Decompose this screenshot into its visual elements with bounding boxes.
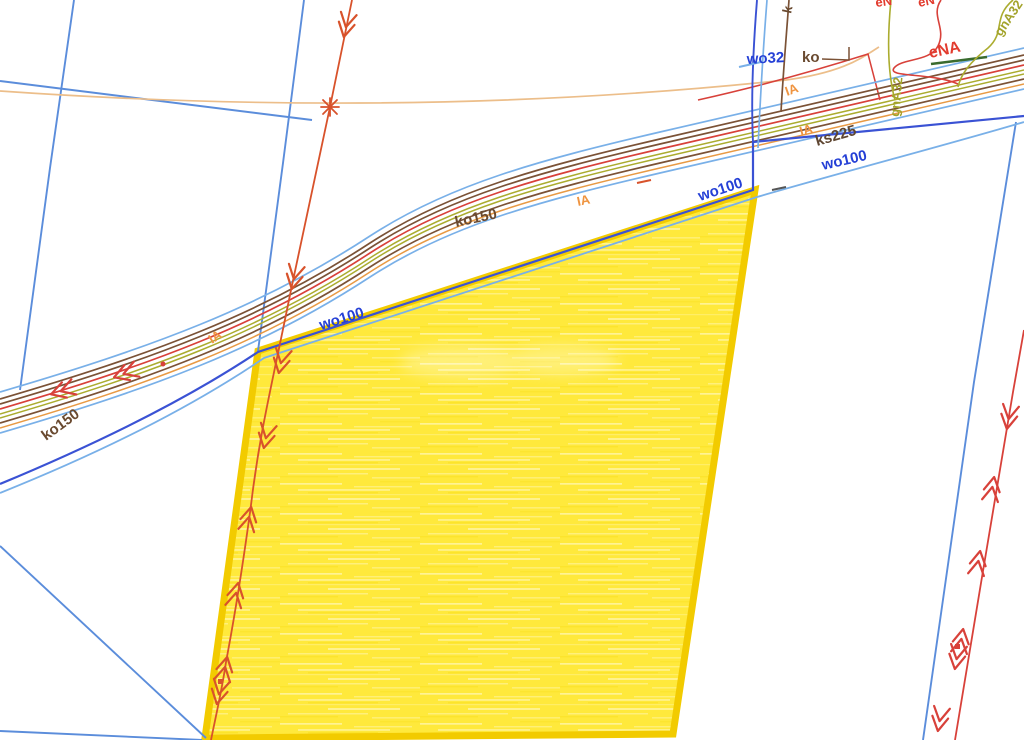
flow-arrow-icon	[999, 404, 1019, 430]
label-ko150-left: ko150	[38, 405, 82, 444]
label-IA-mid: IA	[576, 191, 592, 209]
junction-node-icon	[955, 644, 960, 649]
map-canvas[interactable]: ko150 ko150 IA IA IA IA wo100 wo100 wo10…	[0, 0, 1024, 740]
boundary-line-vertical-left	[20, 0, 74, 390]
tick-mark	[637, 180, 651, 183]
boundary-line-vertical-right	[258, 0, 304, 351]
label-ko: ko	[802, 49, 820, 66]
junction-node-icon	[161, 362, 166, 367]
boundary-line-bottom-diagonal	[0, 546, 206, 738]
flow-arrow-icon	[930, 706, 950, 732]
water-line-wo32-a	[752, 0, 757, 142]
junction-star-icon	[321, 98, 339, 116]
boundary-line-bottom-edge	[0, 731, 202, 740]
label-ko150-mid: ko150	[453, 205, 498, 230]
boundary-line-top-left	[0, 81, 312, 120]
label-wo100-right: wo100	[819, 147, 868, 174]
label-gnA32-corner: gnA32	[991, 0, 1024, 39]
label-eNA: eNA	[927, 39, 962, 62]
label-IA-upper: IA	[783, 80, 801, 99]
highlighted-parcel[interactable]	[205, 190, 755, 738]
drainage-path	[955, 330, 1024, 740]
flow-arrow-icon	[336, 12, 357, 39]
label-gnA32: gnA32	[887, 76, 905, 117]
ko-leader-bracket	[822, 47, 849, 60]
flow-arrow-icon	[284, 264, 305, 291]
drainage-line-right	[930, 330, 1024, 740]
label-eN-right: eN	[917, 0, 936, 10]
label-k: k	[779, 4, 795, 15]
label-wo32: wo32	[745, 49, 784, 68]
junction-node-icon	[218, 679, 223, 684]
